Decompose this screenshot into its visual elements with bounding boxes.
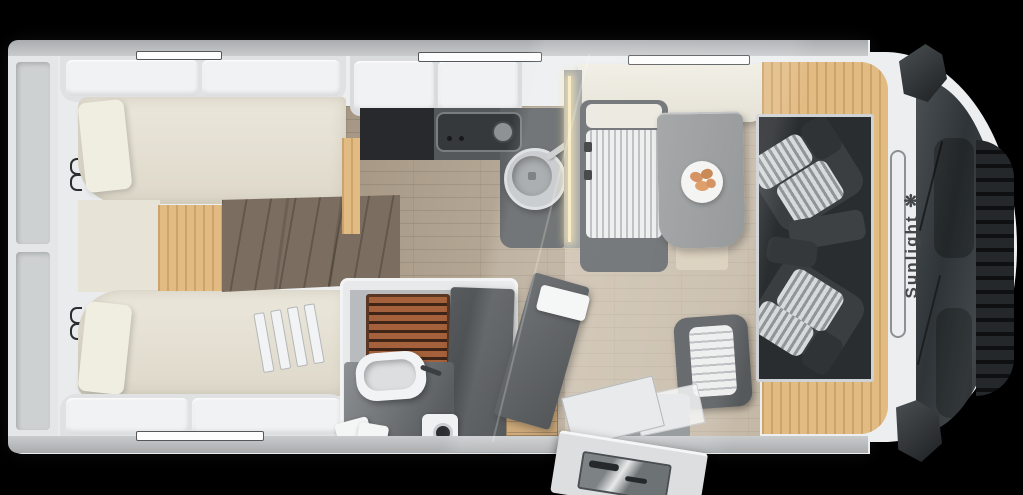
bed-platform <box>78 200 160 292</box>
cab-console <box>765 236 818 269</box>
engine-shadow <box>934 138 974 258</box>
bed-top-backrest <box>77 99 132 193</box>
bed-bottom-backrest <box>77 301 132 395</box>
step-seam <box>273 195 290 292</box>
locker-door <box>202 60 340 96</box>
cab-opening <box>756 114 874 382</box>
window-strip <box>136 51 222 60</box>
rear-shelf-top <box>16 62 50 244</box>
window-strip <box>418 52 542 62</box>
washbasin-bowl <box>363 358 417 392</box>
gas-hob <box>436 112 522 152</box>
engine-shadow <box>936 308 972 418</box>
door-window <box>577 451 672 495</box>
locker-door <box>66 60 198 96</box>
kitchen-niche <box>360 108 434 160</box>
window-strip <box>136 431 264 441</box>
bench-bracket <box>584 142 592 152</box>
hob-knob <box>459 136 464 141</box>
brand-logo: Sunlight ❋ <box>901 165 923 325</box>
wardrobe-hook-icon <box>70 174 82 191</box>
kitchen-overhead-lockers <box>350 56 522 116</box>
bench-cushion <box>586 130 662 238</box>
sunlight-flower-icon: ❋ <box>902 192 921 208</box>
front-grille <box>976 140 1014 396</box>
window-strip <box>628 55 750 65</box>
locker-door <box>192 398 340 434</box>
bed-ladder <box>251 301 329 376</box>
bed-step-oak <box>158 205 222 291</box>
kitchen-oak-side <box>342 138 360 234</box>
locker-door <box>354 61 434 111</box>
overhead-lockers-rear-top <box>60 56 346 102</box>
dinette-table <box>657 111 745 248</box>
locker-door <box>438 61 518 111</box>
washbasin <box>354 350 427 403</box>
led-light-strip <box>568 76 571 242</box>
kitchen-sink <box>504 148 566 210</box>
rear-shelf-bottom <box>16 252 50 430</box>
motorhome-floorplan: Sunlight ❋ <box>0 0 1023 495</box>
hob-knob <box>447 136 452 141</box>
bench-headrest <box>586 104 662 128</box>
bench-bracket <box>584 170 592 180</box>
dinette-bench <box>580 100 668 272</box>
locker-door <box>66 398 188 434</box>
cab-passenger-seat <box>756 249 874 382</box>
sink-drain <box>528 172 536 180</box>
brand-text: Sunlight <box>902 215 921 299</box>
hob-burner <box>492 121 514 143</box>
